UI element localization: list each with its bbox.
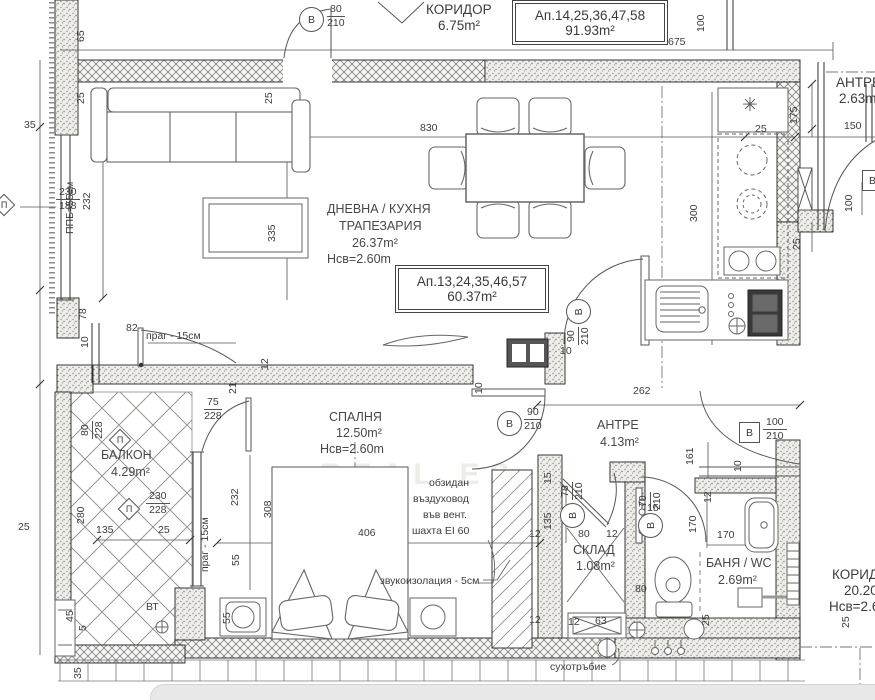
dim-65: 65 xyxy=(75,30,88,42)
dim-15-bath: 15 xyxy=(647,502,659,515)
room-storage-name: СКЛАД xyxy=(573,544,615,557)
room-corridor-top-area: 6.75m² xyxy=(438,19,480,32)
dim-232-ppb: 232 xyxy=(81,192,94,210)
viewer-bottom-bar xyxy=(150,684,875,700)
dim-25-right: 25 xyxy=(791,238,804,250)
dim-10-left: 10 xyxy=(79,336,92,348)
door-size-living-antre-height: 210 xyxy=(579,327,592,345)
door-size-antre: 90 210 xyxy=(524,406,542,433)
room-antre-name: АНТРЕ xyxy=(597,419,639,432)
door-size-sklad-width: 78 xyxy=(559,482,573,500)
door-size-entry-height: 210 xyxy=(766,430,784,443)
room-bedroom-height: Нсв=2.60m xyxy=(320,443,384,456)
dim-63: 63 xyxy=(595,615,607,628)
dim-10-d: 10 xyxy=(732,460,745,472)
door-badge-sklad: В 78 210 xyxy=(559,482,586,528)
note-sound-insulation: звукоизолация - 5см xyxy=(380,575,479,588)
apartment-box-main-line2: 60.37m² xyxy=(399,289,545,304)
door-size-living-antre-width: 90 xyxy=(565,327,579,345)
dim-25-right-edge: 25 xyxy=(840,616,853,628)
dim-150: 150 xyxy=(844,120,862,133)
dim-12-vent-bottom: 12 xyxy=(529,614,541,627)
note-vent-line1: обзидан xyxy=(429,477,469,490)
door-size-living-antre: 90 210 xyxy=(565,327,592,345)
dim-170-horizontal: 170 xyxy=(717,529,735,542)
dim-12-washer: 12 xyxy=(568,616,580,629)
apartment-box-main-line1: Ап.13,24,35,46,57 xyxy=(399,274,545,289)
apartment-box-upper-line1: Ап.14,25,36,47,58 xyxy=(516,8,664,23)
dim-100-top: 100 xyxy=(695,14,708,32)
door-size-entry: 100 210 xyxy=(763,416,787,443)
door-size-top-width: 80 xyxy=(327,3,345,17)
door-size-bedroom-width: 75 xyxy=(204,396,222,410)
door-size-top: 80 210 xyxy=(327,3,345,30)
note-vent-line3: във вент. xyxy=(423,509,467,522)
door-size-antre-width: 90 xyxy=(524,406,542,420)
apartment-box-upper-line2: 91.93m² xyxy=(516,23,664,38)
dim-35-bottom: 35 xyxy=(72,667,85,679)
room-living-height: Нсв=2.60m xyxy=(327,253,391,266)
room-storage-area: 1.08m² xyxy=(576,560,615,573)
dim-12-vent-top: 12 xyxy=(529,528,541,541)
room-corridor-right-height: Нсв=2.60m xyxy=(829,600,875,613)
window-size-balcony-mid-width: 230 xyxy=(146,490,170,504)
room-bedroom-name: СПАЛНЯ xyxy=(329,411,382,424)
door-size-sklad: 78 210 xyxy=(559,482,586,500)
window-size-balcony-mid: 230 228 xyxy=(146,490,170,517)
dim-82: 82 xyxy=(126,322,138,335)
room-living-name1: ДНЕВНА / КУХНЯ xyxy=(327,203,431,216)
dim-12-mid: 12 xyxy=(259,358,272,370)
door-badge-bath: В 70 210 xyxy=(637,492,664,538)
fridge-star-icon: ✳ xyxy=(742,94,758,117)
dim-45: 45 xyxy=(64,610,77,622)
note-vent-line4: шахта EI 60 xyxy=(412,525,469,538)
note-vt: ВТ xyxy=(146,601,159,614)
dim-170-vertical: 170 xyxy=(687,515,700,533)
note-dry-pipe: сухотръбие xyxy=(550,661,606,674)
dim-262: 262 xyxy=(633,385,651,398)
dim-300: 300 xyxy=(688,204,701,222)
dim-308: 308 xyxy=(262,500,275,518)
door-size-antre-height: 210 xyxy=(524,420,542,433)
room-corridor-right-name: КОРИДОР xyxy=(832,568,875,581)
apartment-box-main: Ап.13,24,35,46,57 60.37m² xyxy=(398,268,546,310)
window-badge-balcony-mid-letter: П xyxy=(126,504,132,514)
door-badge-entry-letter: В xyxy=(739,422,760,443)
dim-135-sklad: 135 xyxy=(542,512,555,530)
dim-25-sofa-right: 25 xyxy=(263,92,276,104)
dim-25-sofa-left: 25 xyxy=(75,92,88,104)
window-size-balcony-top: 80 228 xyxy=(79,421,106,439)
room-bath-area: 2.69m² xyxy=(718,574,757,587)
dim-161: 161 xyxy=(684,447,697,465)
room-living-area: 26.37m² xyxy=(352,237,398,250)
room-corridor-top-name: КОРИДОР xyxy=(426,3,492,16)
dim-15-sklad: 15 xyxy=(542,472,555,484)
dim-10-c: 10 xyxy=(473,382,486,394)
dim-280: 280 xyxy=(75,506,88,524)
window-size-balcony-mid-height: 228 xyxy=(149,504,167,517)
door-badge-sklad-letter: В xyxy=(560,503,585,528)
door-badge-bath-letter: В xyxy=(638,513,663,538)
dim-25-left-edge: 25 xyxy=(18,521,30,534)
dim-80-toilet: 80 xyxy=(635,583,647,596)
switch-box xyxy=(383,335,548,367)
dim-25-kitchen: 25 xyxy=(755,123,767,136)
dim-830: 830 xyxy=(420,122,438,135)
bed xyxy=(272,467,408,639)
room-balcony-area: 4.29m² xyxy=(111,466,150,479)
dim-35: 35 xyxy=(24,119,36,132)
room-corridor-right-area: 20.20m² xyxy=(844,584,875,597)
door-size-bedroom: 75 228 xyxy=(204,396,222,423)
note-prag-horizontal: праг - 15см xyxy=(146,330,201,343)
room-antre-area: 4.13m² xyxy=(600,436,639,449)
dim-5: 5 xyxy=(77,625,90,631)
door-badge-living-antre-letter: В xyxy=(566,299,591,324)
dim-25-bath: 25 xyxy=(700,614,713,626)
vent-shaft xyxy=(492,470,532,648)
dim-80-sklad: 80 xyxy=(578,528,590,541)
coffee-table xyxy=(203,198,308,258)
room-antre-right-area: 2.63m² xyxy=(839,92,875,105)
window-size-balcony-top-width: 80 xyxy=(79,421,93,439)
dim-55-bed: 55 xyxy=(230,554,243,566)
door-badge-living-antre: 90 210 В xyxy=(565,299,592,345)
door-size-top-height: 210 xyxy=(327,17,345,30)
window-size-balcony-top-height: 228 xyxy=(93,421,106,439)
room-antre-right-name: АНТРЕ xyxy=(836,76,875,89)
room-bath-name: БАНЯ / WC xyxy=(706,557,772,570)
dim-25-balcony: 25 xyxy=(158,524,170,537)
floor-plan: REAL ES xyxy=(0,0,875,700)
door-size-sklad-height: 210 xyxy=(573,482,586,500)
apartment-box-upper: Ап.14,25,36,47,58 91.93m² xyxy=(515,3,665,42)
door-size-bedroom-height: 228 xyxy=(204,410,222,423)
dim-406: 406 xyxy=(358,527,376,540)
door-badge-antre-letter: В xyxy=(497,411,522,436)
room-balcony-name: БАЛКОН xyxy=(101,449,152,462)
dim-12-bath: 12 xyxy=(702,491,715,503)
dim-232-bedroom: 232 xyxy=(229,488,242,506)
dining-set xyxy=(429,98,625,238)
note-vent-line2: въздуховод xyxy=(413,493,469,506)
dim-675: 675 xyxy=(668,36,686,49)
dim-12-sklad: 12 xyxy=(606,528,618,541)
dim-335: 335 xyxy=(266,224,279,242)
door-badge-right-edge: В xyxy=(862,170,875,191)
door-badge-top-letter: В xyxy=(299,7,324,32)
dim-10-b: 10 xyxy=(560,345,572,358)
window-badge-balcony-top-letter: П xyxy=(117,435,123,445)
sofa xyxy=(91,88,310,172)
note-prag-vertical: праг - 15см xyxy=(199,517,212,572)
dim-135-balcony: 135 xyxy=(96,524,114,537)
door-size-entry-width: 100 xyxy=(763,416,787,430)
window-badge-left-letter: П xyxy=(1,200,7,210)
dim-21: 21 xyxy=(227,382,240,394)
dim-100-right: 100 xyxy=(843,194,856,212)
dim-175: 175 xyxy=(788,106,801,124)
dim-78-left: 78 xyxy=(77,308,90,320)
dim-55-nightstand: 55 xyxy=(221,612,234,624)
room-bedroom-area: 12.50m² xyxy=(336,427,382,440)
note-ppb: ППБ=55см xyxy=(64,182,77,234)
room-living-name2: ТРАПЕЗАРИЯ xyxy=(339,220,422,233)
